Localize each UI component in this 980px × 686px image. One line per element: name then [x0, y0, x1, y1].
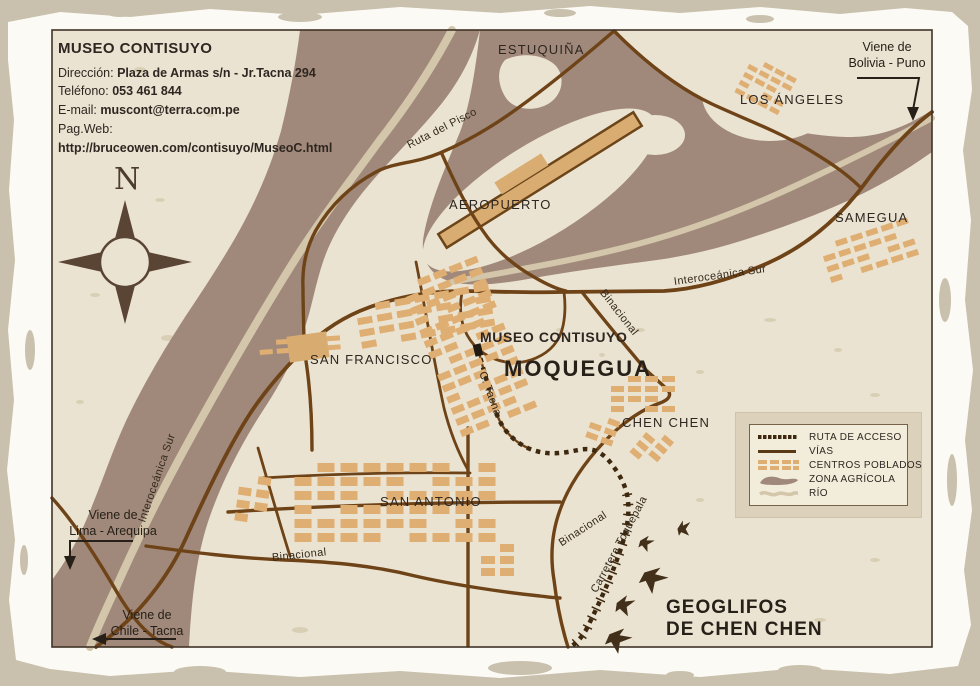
- museum-address-line: Dirección: Plaza de Armas s/n - Jr.Tacna…: [58, 64, 368, 83]
- email-label: E-mail:: [58, 103, 97, 117]
- place-label-moquegua: MOQUEGUA: [504, 356, 652, 382]
- legend-label: CENTROS POBLADOS: [809, 460, 922, 471]
- direction-lima-line2: Lima - Arequipa: [58, 524, 168, 540]
- legend-item-zona-agricola: ZONA AGRÍCOLA: [758, 473, 899, 486]
- access-route-swatch-icon: [758, 431, 800, 443]
- direction-lima-arequipa: Viene de Lima - Arequipa: [58, 508, 168, 539]
- phone-value: 053 461 844: [112, 84, 182, 98]
- legend-label: VÍAS: [809, 446, 833, 457]
- museum-web-label: Pag.Web:: [58, 120, 368, 139]
- agricultural-zone-swatch-icon: [758, 473, 800, 486]
- place-label-aeropuerto: AEROPUERTO: [449, 197, 552, 212]
- legend-panel: RUTA DE ACCESO VÍAS CENTROS POBLADOS ZON…: [749, 424, 908, 506]
- direction-lima-line1: Viene de: [58, 508, 168, 524]
- map-labels-layer: MUSEO CONTISUYO Dirección: Plaza de Arma…: [52, 30, 932, 647]
- road-label-carretera-toquepala: Carretera Toquepala: [589, 494, 650, 595]
- museum-phone-line: Teléfono: 053 461 844: [58, 82, 368, 101]
- direction-chile-tacna: Viene de Chile - Tacna: [92, 608, 202, 639]
- museum-info-box: MUSEO CONTISUYO Dirección: Plaza de Arma…: [58, 38, 368, 157]
- river-swatch-icon: [758, 487, 800, 499]
- email-value: muscont@terra.com.pe: [100, 103, 239, 117]
- place-label-los-angeles: LOS ÁNGELES: [740, 92, 844, 107]
- map-page: MUSEO CONTISUYO Dirección: Plaza de Arma…: [0, 0, 980, 686]
- road-label-c-tacna: C. Tacna: [476, 370, 503, 418]
- legend-label: RUTA DE ACCESO: [809, 432, 902, 443]
- place-label-chen-chen: CHEN CHEN: [622, 415, 710, 430]
- road-label-interoceanica-top: Interoceánica Sur: [673, 263, 767, 288]
- place-label-san-antonio: SAN ANTONIO: [380, 494, 482, 509]
- road-label-ruta-del-pisco: Ruta del Pisco: [405, 106, 479, 151]
- legend-item-ruta-de-acceso: RUTA DE ACCESO: [758, 431, 899, 444]
- legend-item-vias: VÍAS: [758, 445, 899, 458]
- place-label-estuquina: ESTUQUIÑA: [498, 42, 585, 57]
- legend-box: RUTA DE ACCESO VÍAS CENTROS POBLADOS ZON…: [735, 412, 922, 518]
- museum-email-line: E-mail: muscont@terra.com.pe: [58, 101, 368, 120]
- phone-label: Teléfono:: [58, 84, 109, 98]
- direction-chile-line2: Chile - Tacna: [92, 624, 202, 640]
- road-label-binacional-se: Binacional: [557, 509, 609, 549]
- road-swatch-icon: [758, 445, 800, 457]
- address-label: Dirección:: [58, 66, 114, 80]
- museum-web-url: http://bruceowen.com/contisuyo/MuseoC.ht…: [58, 139, 368, 158]
- legend-label: ZONA AGRÍCOLA: [809, 474, 895, 485]
- place-label-geoglifos-line1: GEOGLIFOS: [666, 597, 788, 619]
- populated-centers-swatch-icon: [758, 459, 800, 471]
- direction-bolivia-puno: Viene de Bolivia - Puno: [822, 40, 932, 71]
- direction-bolivia-line1: Viene de: [822, 40, 932, 56]
- legend-label: RÍO: [809, 488, 828, 499]
- road-label-binacional-s: Binacional: [271, 546, 327, 564]
- legend-item-rio: RÍO: [758, 487, 899, 500]
- compass-north-label: N: [114, 162, 140, 197]
- direction-bolivia-line2: Bolivia - Puno: [822, 56, 932, 72]
- place-label-samegua: SAMEGUA: [835, 210, 908, 225]
- place-label-geoglifos-line2: DE CHEN CHEN: [666, 619, 823, 641]
- place-label-san-francisco: SAN FRANCISCO: [310, 352, 433, 367]
- direction-chile-line1: Viene de: [92, 608, 202, 624]
- place-label-museo-contisuyo: MUSEO CONTISUYO: [480, 329, 627, 345]
- museum-title: MUSEO CONTISUYO: [58, 38, 368, 61]
- legend-item-centros-poblados: CENTROS POBLADOS: [758, 459, 899, 472]
- address-value: Plaza de Armas s/n - Jr.Tacna 294: [117, 66, 316, 80]
